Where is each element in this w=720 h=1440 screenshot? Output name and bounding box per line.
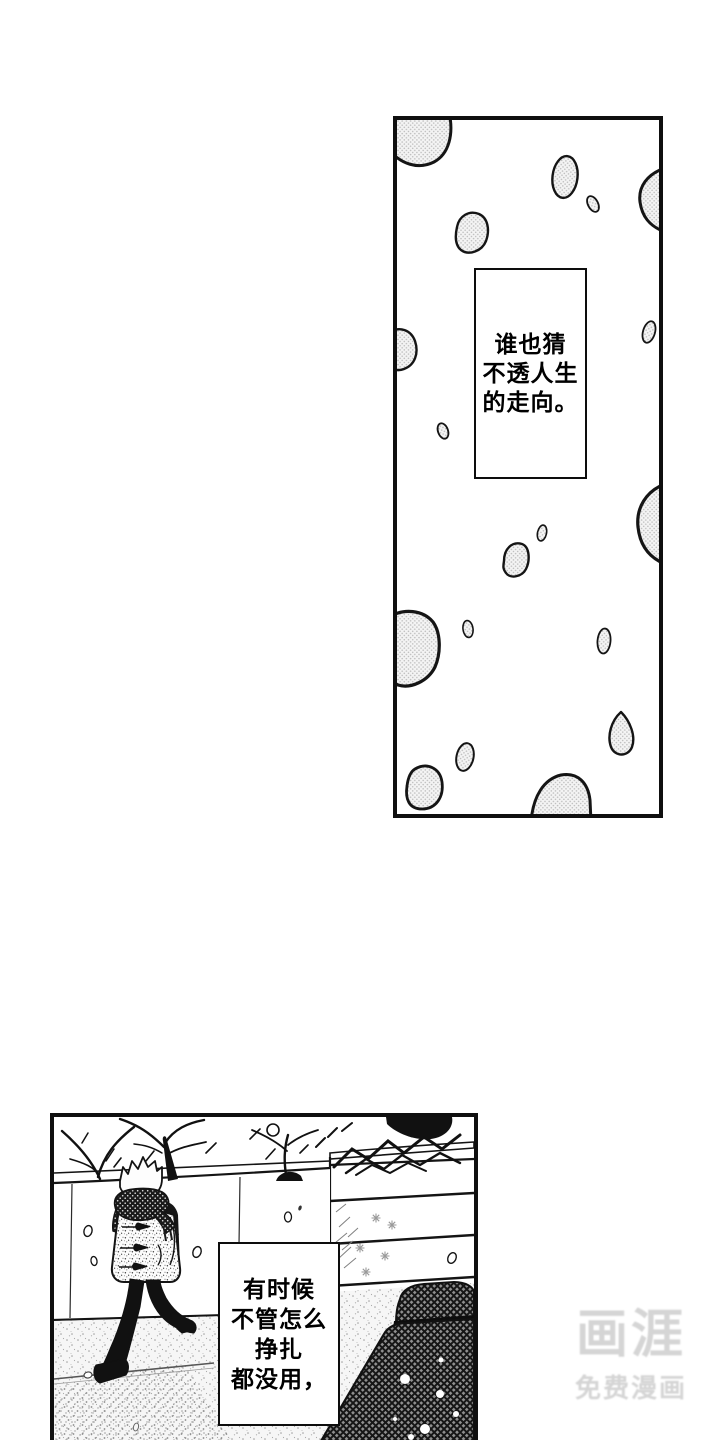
watermark-logo: 画涯 免费漫画 (556, 1306, 706, 1405)
narration-box-2: 有时候 不管怎么 挣扎 都没用， (218, 1242, 340, 1426)
watermark-subtitle: 免费漫画 (556, 1368, 706, 1405)
snowball (267, 1124, 279, 1136)
watermark-title: 画涯 (556, 1306, 706, 1364)
narration-line: 谁也猜 (476, 330, 585, 359)
narration-box-1: 谁也猜 不透人生 的走向。 (474, 268, 587, 479)
narration-line: 不透人生 (476, 359, 585, 388)
narration-line: 挣扎 (220, 1334, 338, 1364)
manga-page: 谁也猜 不透人生 的走向。 (0, 0, 720, 1440)
narration-line: 的走向。 (476, 388, 585, 417)
narration-line: 有时候 (220, 1274, 338, 1304)
narration-line: 不管怎么 (220, 1304, 338, 1334)
narration-line: 都没用， (220, 1364, 338, 1394)
